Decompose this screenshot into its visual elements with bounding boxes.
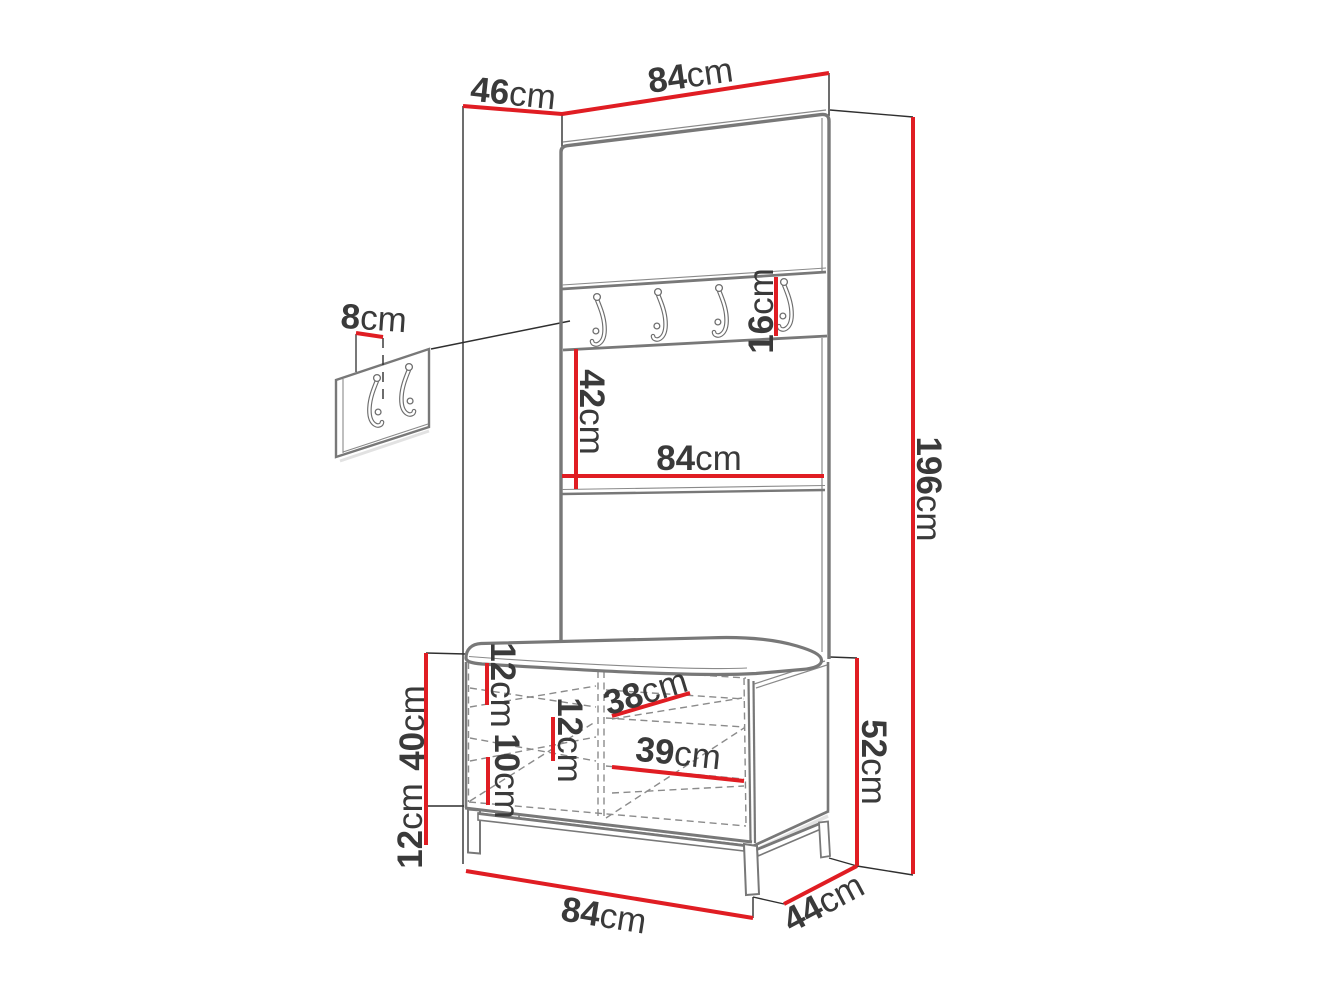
svg-text:84cm: 84cm (656, 439, 742, 478)
svg-text:12cm: 12cm (550, 697, 589, 783)
svg-text:42cm: 42cm (572, 369, 611, 455)
svg-text:12cm: 12cm (483, 642, 522, 728)
svg-text:40cm: 40cm (393, 685, 432, 771)
svg-text:196cm: 196cm (909, 436, 948, 541)
svg-text:12cm: 12cm (391, 783, 430, 869)
svg-text:10cm: 10cm (487, 733, 526, 819)
svg-text:52cm: 52cm (854, 719, 893, 805)
svg-text:8cm: 8cm (339, 297, 408, 341)
svg-text:16cm: 16cm (742, 268, 781, 354)
